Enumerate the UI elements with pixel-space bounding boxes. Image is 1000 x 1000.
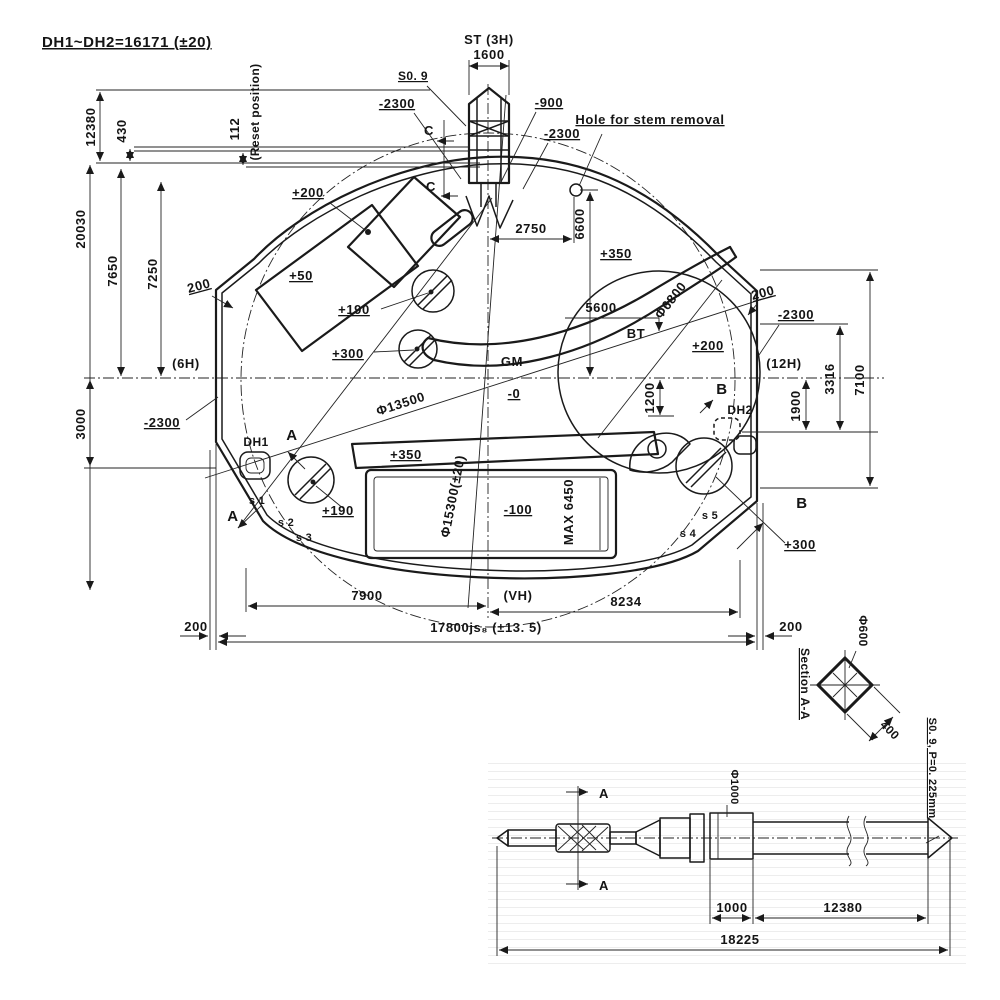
label-reset-position: (Reset position)	[248, 63, 262, 160]
dim-200-right-edge: 200	[750, 282, 777, 303]
dim-17800-total: 17800js₈ (±13. 5)	[430, 620, 542, 635]
dimension-lines	[90, 66, 870, 642]
marker-a-stem-bottom: A	[599, 878, 609, 893]
label-minus2300-side: -2300	[144, 415, 180, 430]
marker-s2: s 2	[278, 517, 294, 529]
dim-200-bottom-left: 200	[184, 619, 208, 634]
dim-2750: 2750	[515, 221, 546, 236]
centerlines	[84, 84, 884, 627]
marker-s1: s 1	[249, 495, 265, 507]
plus50-bridge	[256, 205, 418, 351]
label-minus2300-left: -2300	[379, 96, 415, 111]
note-hole-stem-removal: Hole for stem removal	[575, 112, 724, 127]
section-aa-detail	[810, 650, 939, 843]
label-plus200-right: +200	[692, 338, 724, 353]
label-s09: S0. 9	[398, 69, 428, 83]
dim-max6450: MAX 6450	[561, 479, 576, 545]
label-12h-position: (12H)	[766, 356, 802, 371]
marker-b-lower: B	[796, 495, 807, 512]
label-st-3h: ST (3H)	[464, 32, 514, 47]
dim-7250: 7250	[145, 258, 160, 289]
battery-frame-outer	[366, 470, 616, 558]
dim-7900: 7900	[351, 588, 382, 603]
dim-12380-stem: 12380	[823, 900, 862, 915]
label-minus100: -100	[504, 502, 532, 517]
dim-18225-stem: 18225	[720, 932, 759, 947]
stem-side-view	[492, 786, 958, 956]
dim-20030: 20030	[73, 209, 88, 248]
dim-3316: 3316	[822, 363, 837, 394]
dim-430: 430	[114, 119, 129, 143]
label-gm: GM	[501, 354, 523, 369]
title-dh-distance: DH1~DH2=16171 (±20)	[42, 34, 212, 51]
label-plus190-upper: +190	[338, 302, 370, 317]
label-vh: (VH)	[503, 588, 532, 603]
dim-200-bottom-right: 200	[779, 619, 803, 634]
label-thread-spec: S0. 9, P=0. 225mm	[926, 718, 938, 819]
dim-dia13500: Φ13500	[374, 389, 427, 419]
dim-5600: 5600	[585, 300, 616, 315]
label-plus300-upper: +300	[332, 346, 364, 361]
label-dh2: DH2	[727, 403, 752, 417]
marker-a-stem-top: A	[599, 786, 609, 801]
dim-200-left-edge: 200	[186, 275, 213, 296]
label-plus350-lower: +350	[390, 447, 422, 462]
marker-a-lower: A	[227, 508, 238, 525]
label-minus900: -900	[535, 95, 563, 110]
lever-spring-upper	[428, 247, 730, 344]
dim-7100: 7100	[852, 364, 867, 395]
marker-s5: s 5	[702, 510, 718, 522]
dim-8234: 8234	[610, 594, 641, 609]
dim-1600: 1600	[473, 47, 504, 62]
marker-b-upper: B	[716, 381, 727, 398]
label-minus0: -0	[508, 386, 521, 401]
label-plus200-upper: +200	[292, 185, 324, 200]
dim-3000: 3000	[73, 408, 88, 439]
setting-lever	[630, 433, 690, 472]
label-minus2300-right-side: -2300	[778, 307, 814, 322]
dim-1900: 1900	[788, 390, 803, 421]
marker-a-upper: A	[286, 427, 297, 444]
technical-drawing-canvas: DH1~DH2=16171 (±20) ST (3H) 1600 S0. 9 -…	[0, 0, 1000, 1000]
label-bt: BT	[627, 326, 646, 341]
dim-6600: 6600	[572, 208, 587, 239]
label-plus300-lower: +300	[784, 537, 816, 552]
section-c-marker-bottom: C	[426, 179, 436, 194]
marker-s4: s 4	[680, 528, 697, 540]
dim-dia600: Φ600	[856, 615, 870, 646]
dim-1000-stem: 1000	[716, 900, 747, 915]
dim-dia6800: Φ6800	[651, 279, 689, 322]
labels: DH1~DH2=16171 (±20) ST (3H) 1600 S0. 9 -…	[42, 32, 938, 947]
label-plus50: +50	[289, 268, 313, 283]
label-plus350-upper: +350	[600, 246, 632, 261]
dim-12380-left: 12380	[83, 107, 98, 146]
dim-dia1000: Φ1000	[728, 770, 740, 805]
label-dh1: DH1	[243, 435, 268, 449]
dim-7650: 7650	[105, 255, 120, 286]
label-section-aa: Section A-A	[798, 648, 812, 720]
label-6h-position: (6H)	[172, 356, 200, 371]
label-minus2300-right: -2300	[544, 126, 580, 141]
label-plus190-lower: +190	[322, 503, 354, 518]
dim-dia15300: Φ15300(±20)	[437, 454, 468, 539]
section-c-marker-top: C	[424, 123, 434, 138]
dim-1200: 1200	[642, 382, 657, 413]
drawing-sheet: DH1~DH2=16171 (±20) ST (3H) 1600 S0. 9 -…	[0, 0, 1000, 1000]
dim-400-square: 400	[877, 718, 902, 743]
marker-s3: s 3	[296, 532, 312, 544]
dim-112: 112	[227, 118, 242, 141]
